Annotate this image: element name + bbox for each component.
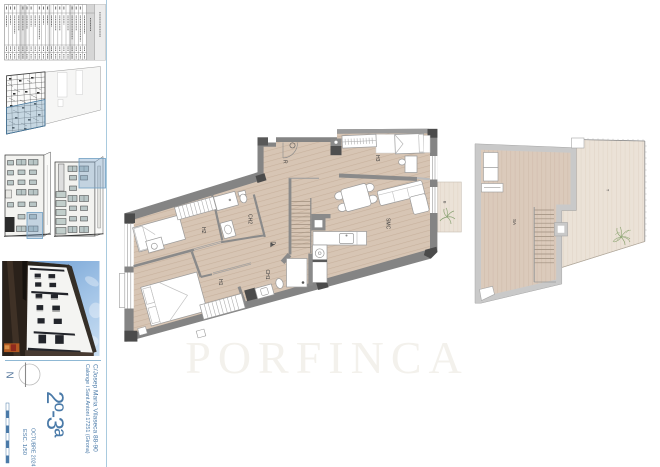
svg-text:CH2: CH2 bbox=[247, 214, 253, 224]
svg-text:C/Josep Maria Vilaseca 88-90: C/Josep Maria Vilaseca 88-90 bbox=[92, 364, 99, 452]
svg-text:2º-3ª: 2º-3ª bbox=[41, 391, 68, 437]
svg-text:H3: H3 bbox=[374, 155, 380, 162]
svg-text:OCTUBRE 2024: OCTUBRE 2024 bbox=[30, 428, 36, 466]
svg-text:R: R bbox=[282, 160, 288, 164]
svg-text:D: D bbox=[270, 242, 276, 246]
svg-text:SA: SA bbox=[512, 219, 517, 225]
svg-text:N: N bbox=[4, 372, 15, 379]
svg-text:ESC. 1/50: ESC. 1/50 bbox=[21, 429, 27, 455]
svg-text:SMC: SMC bbox=[385, 218, 391, 230]
svg-text:H2: H2 bbox=[200, 227, 206, 234]
svg-text:PORFINCA: PORFINCA bbox=[185, 332, 469, 383]
svg-text:CH1: CH1 bbox=[264, 270, 270, 280]
svg-text:Calonge i Sant Antoni 17251 (: Calonge i Sant Antoni 17251 (Girona) bbox=[84, 364, 90, 454]
svg-text:H1: H1 bbox=[217, 279, 223, 286]
